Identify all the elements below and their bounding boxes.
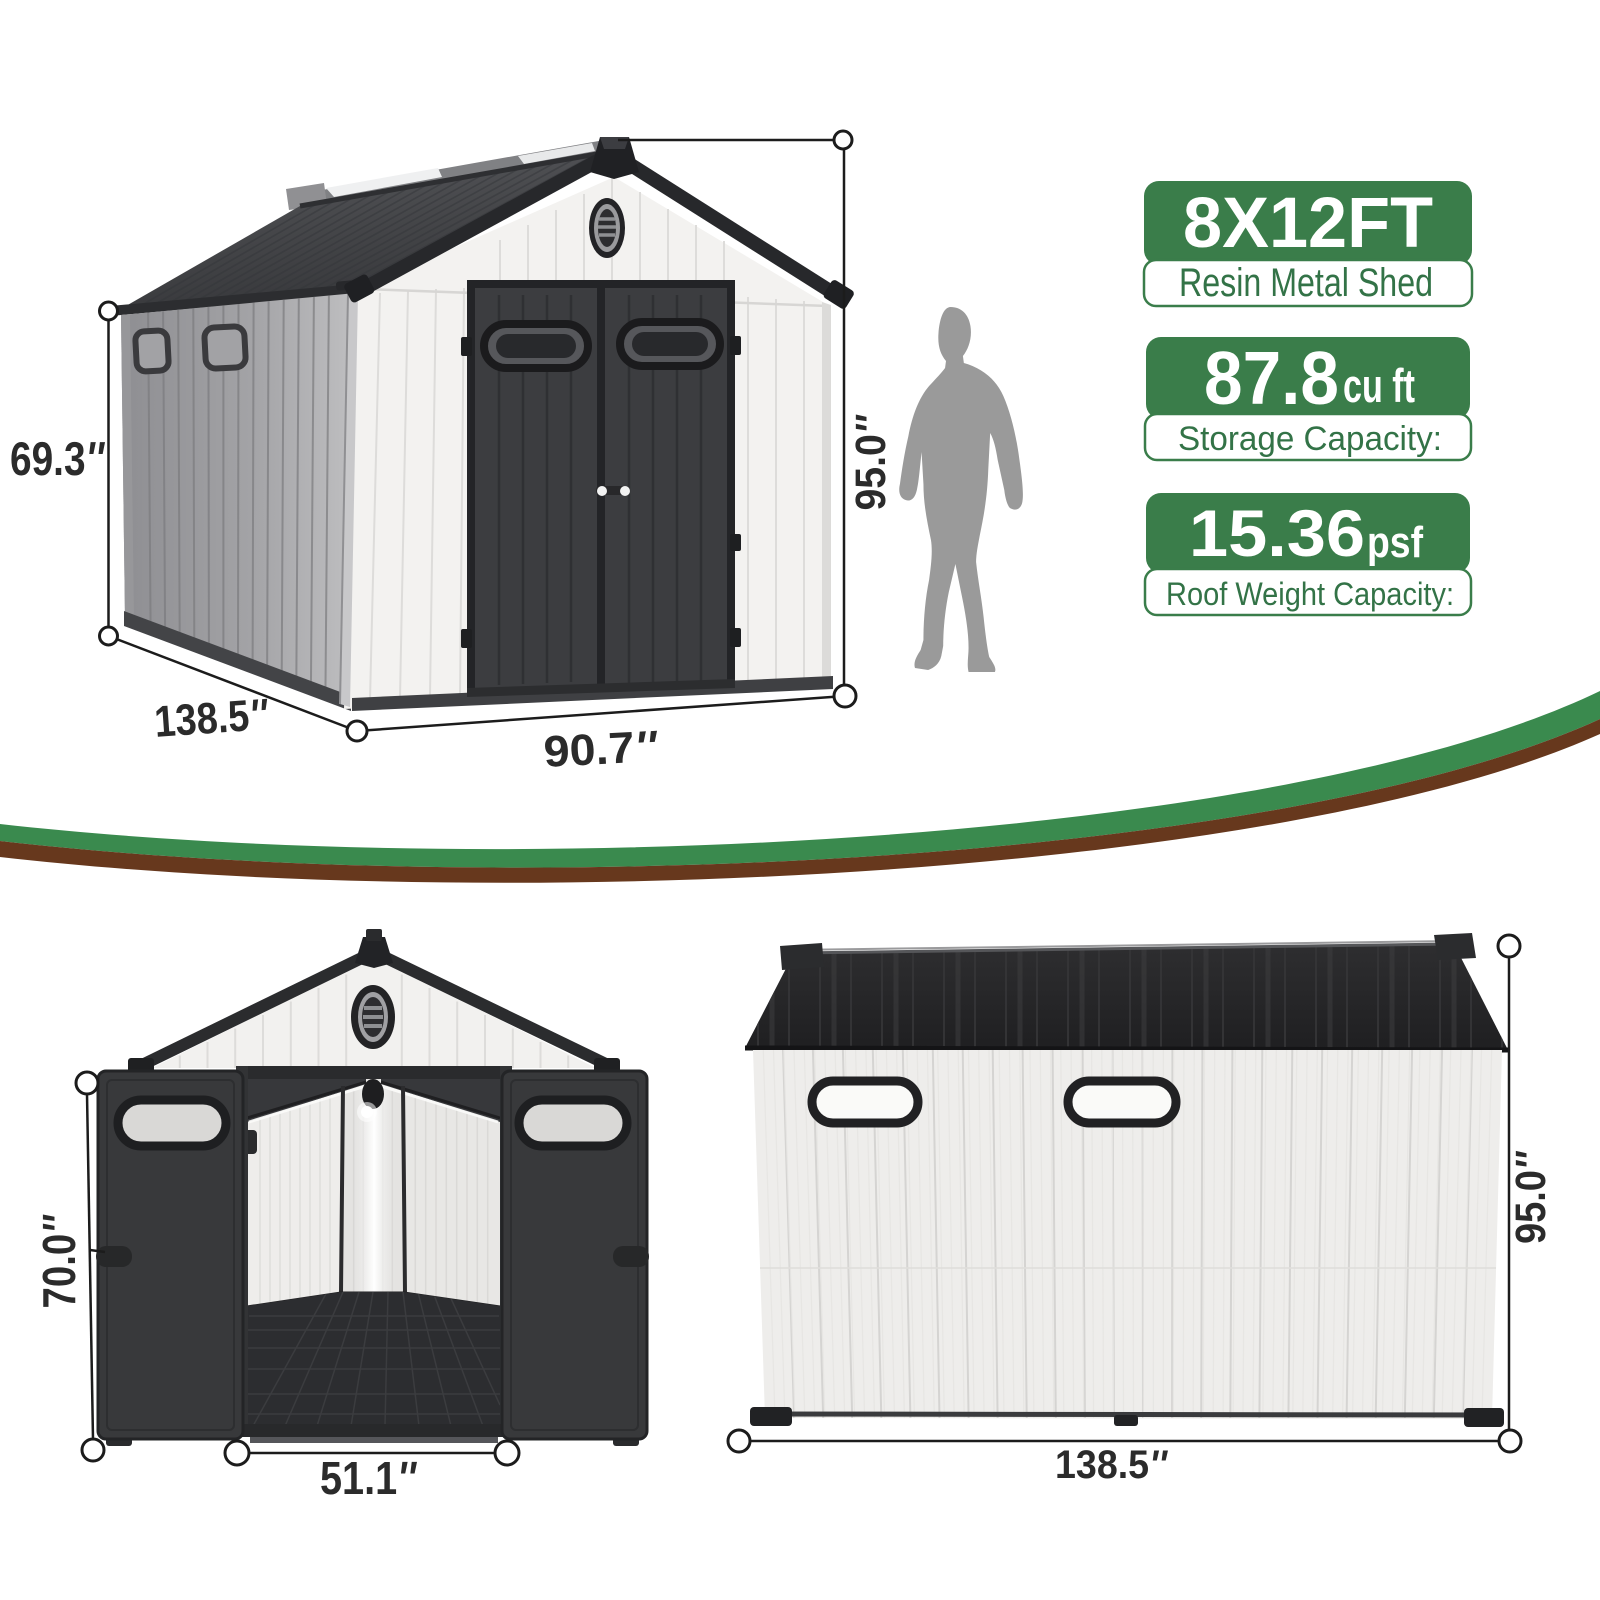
svg-text:95.0'': 95.0'' bbox=[1507, 1150, 1555, 1244]
svg-text:psf: psf bbox=[1367, 518, 1423, 567]
svg-text:Storage Capacity:: Storage Capacity: bbox=[1178, 420, 1442, 458]
svg-text:15.36: 15.36 bbox=[1189, 496, 1365, 570]
svg-text:70.0'': 70.0'' bbox=[33, 1214, 85, 1309]
svg-text:Roof Weight Capacity:: Roof Weight Capacity: bbox=[1166, 576, 1454, 612]
svg-text:95.0'': 95.0'' bbox=[847, 414, 895, 511]
svg-text:87.8: 87.8 bbox=[1204, 336, 1339, 420]
svg-text:8X12FT: 8X12FT bbox=[1183, 184, 1433, 263]
svg-text:51.1'': 51.1'' bbox=[320, 1452, 418, 1504]
svg-text:69.3'': 69.3'' bbox=[10, 432, 106, 485]
svg-text:Resin Metal Shed: Resin Metal Shed bbox=[1179, 261, 1433, 305]
svg-text:138.5'': 138.5'' bbox=[153, 690, 270, 747]
svg-text:cu ft: cu ft bbox=[1343, 359, 1415, 412]
svg-text:138.5'': 138.5'' bbox=[1055, 1443, 1168, 1487]
svg-text:90.7'': 90.7'' bbox=[542, 722, 659, 777]
